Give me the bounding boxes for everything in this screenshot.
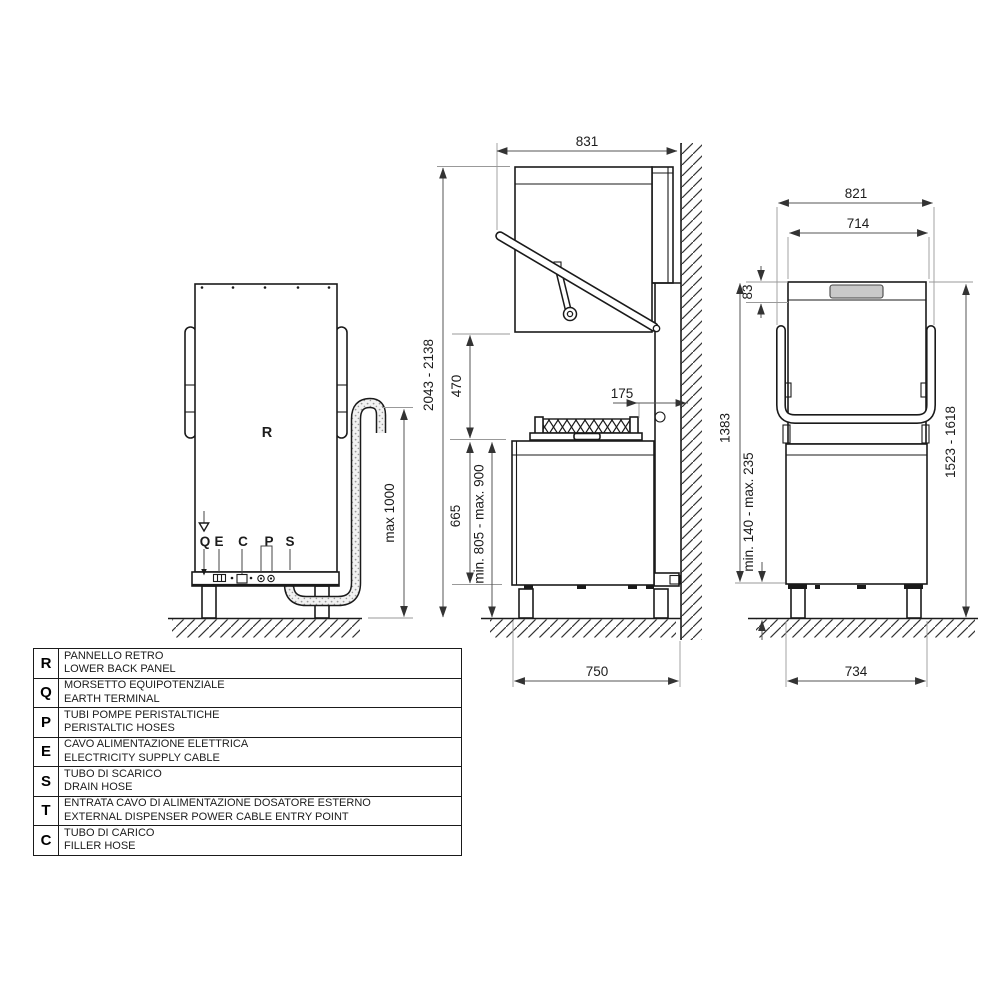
side-view: 831 2043 - 2138 470 665 min. 805 - max. … xyxy=(421,134,702,687)
label-c: C xyxy=(238,534,248,549)
legend-row: E CAVO ALIMENTAZIONE ELETTRICA ELECTRICI… xyxy=(34,737,462,767)
side-front-leg xyxy=(519,589,533,618)
side-ground-hatch xyxy=(490,620,676,638)
legend-row: T ENTRATA CAVO DI ALIMENTAZIONE DOSATORE… xyxy=(34,796,462,826)
front-view: 821 714 83 1383 min. 140 - max. 235 xyxy=(718,186,979,687)
legend-text-en: ELECTRICITY SUPPLY CABLE xyxy=(64,752,461,766)
dim-leg-height: min. 140 - max. 235 xyxy=(741,452,762,640)
svg-text:831: 831 xyxy=(576,134,599,149)
label-s: S xyxy=(285,534,294,549)
front-lower-body xyxy=(786,444,927,584)
legend-letter: S xyxy=(34,767,59,797)
svg-text:min. 140 - max. 235: min. 140 - max. 235 xyxy=(741,452,756,571)
legend-row: P TUBI POMPE PERISTALTICHE PERISTALTIC H… xyxy=(34,708,462,738)
dim-drain-height: max 1000 xyxy=(368,408,413,619)
svg-text:750: 750 xyxy=(586,664,609,679)
svg-text:1383: 1383 xyxy=(718,413,733,443)
back-view: R Q E C P S xyxy=(168,284,413,638)
legend-text-en: FILLER HOSE xyxy=(64,840,461,854)
svg-text:821: 821 xyxy=(845,186,868,201)
side-lower-body xyxy=(512,441,654,585)
legend-text-it: CAVO ALIMENTAZIONE ELETTRICA xyxy=(64,738,461,752)
label-e: E xyxy=(214,534,223,549)
svg-text:734: 734 xyxy=(845,664,868,679)
svg-text:714: 714 xyxy=(847,216,870,231)
dim-work-height: min. 805 - max. 900 xyxy=(472,443,493,618)
back-left-leg xyxy=(202,586,216,618)
legend-letter: R xyxy=(34,649,59,679)
svg-text:175: 175 xyxy=(611,386,634,401)
legend-text-en: EARTH TERMINAL xyxy=(64,693,461,707)
dim-wall-gap: 175 xyxy=(611,386,688,418)
legend-table: R PANNELLO RETRO LOWER BACK PANEL Q MORS… xyxy=(33,648,462,856)
legend-letter: E xyxy=(34,737,59,767)
svg-text:max 1000: max 1000 xyxy=(382,483,397,542)
dim-hood-width: 714 xyxy=(788,216,929,279)
wall-hatch xyxy=(681,143,702,640)
front-ground-hatch xyxy=(756,620,975,638)
dish-rack xyxy=(530,417,642,440)
legend-text-en: EXTERNAL DISPENSER POWER CABLE ENTRY POI… xyxy=(64,811,461,825)
legend-text-it: TUBO DI CARICO xyxy=(64,827,461,841)
control-panel-display xyxy=(830,285,883,298)
legend-text-it: TUBI POMPE PERISTALTICHE xyxy=(64,709,461,723)
legend-text-en: DRAIN HOSE xyxy=(64,781,461,795)
svg-text:83: 83 xyxy=(740,284,755,299)
legend-text-it: ENTRATA CAVO DI ALIMENTAZIONE DOSATORE E… xyxy=(64,797,461,811)
svg-text:665: 665 xyxy=(448,505,463,528)
legend-text-it: TUBO DI SCARICO xyxy=(64,768,461,782)
legend-text-it: PANNELLO RETRO xyxy=(64,650,461,664)
legend-letter: P xyxy=(34,708,59,738)
back-ground-hatch xyxy=(172,620,360,638)
back-panel-label: R xyxy=(262,425,273,441)
side-hood xyxy=(515,167,652,332)
svg-text:470: 470 xyxy=(449,375,464,398)
back-duct-upper xyxy=(652,167,673,283)
svg-text:min. 805 - max. 900: min. 805 - max. 900 xyxy=(472,464,487,583)
legend-text-it: MORSETTO EQUIPOTENZIALE xyxy=(64,679,461,693)
svg-text:1523 - 1618: 1523 - 1618 xyxy=(943,406,958,478)
legend-text-en: PERISTALTIC HOSES xyxy=(64,722,461,736)
legend-letter: C xyxy=(34,826,59,856)
svg-text:2043 - 2138: 2043 - 2138 xyxy=(421,339,436,411)
handle-end-cap xyxy=(653,325,659,331)
wall-pipe-hole xyxy=(655,412,665,422)
legend-text-en: LOWER BACK PANEL xyxy=(64,663,461,677)
dim-top-band: 83 xyxy=(740,266,788,318)
legend-row: C TUBO DI CARICO FILLER HOSE xyxy=(34,826,462,856)
dishwasher-installation-drawing: R Q E C P S xyxy=(0,0,1000,1000)
side-back-leg xyxy=(654,589,668,618)
drawing-canvas: R Q E C P S xyxy=(0,0,1000,700)
legend-letter: Q xyxy=(34,678,59,708)
front-right-leg xyxy=(907,588,921,618)
dim-hood-clearance: 470 xyxy=(449,334,510,440)
front-left-leg xyxy=(791,588,805,618)
legend-row: Q MORSETTO EQUIPOTENZIALE EARTH TERMINAL xyxy=(34,678,462,708)
legend-row: S TUBO DI SCARICO DRAIN HOSE xyxy=(34,767,462,797)
label-q: Q xyxy=(200,534,211,549)
legend-row: R PANNELLO RETRO LOWER BACK PANEL xyxy=(34,649,462,679)
legend-letter: T xyxy=(34,796,59,826)
